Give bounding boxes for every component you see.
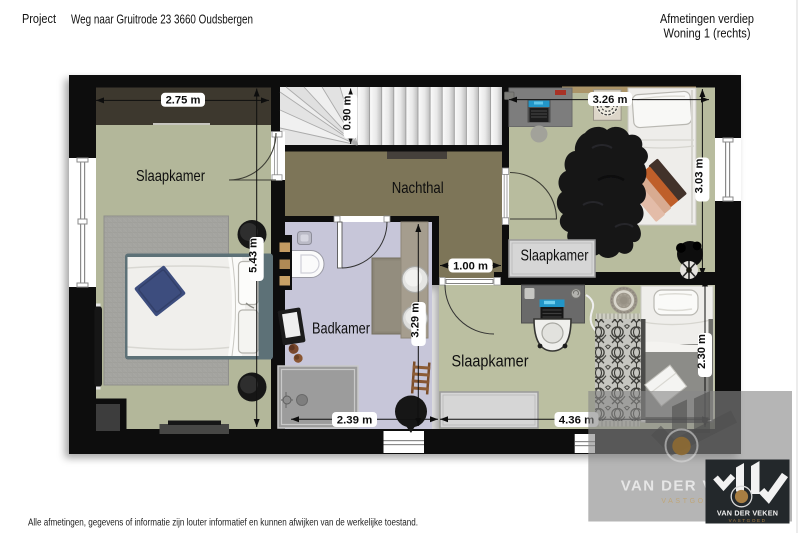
svg-text:Slaapkamer: Slaapkamer: [136, 168, 206, 185]
svg-text:Badkamer: Badkamer: [312, 321, 371, 338]
svg-text:Slaapkamer: Slaapkamer: [452, 352, 529, 371]
svg-text:3.03 m: 3.03 m: [693, 158, 705, 193]
svg-text:2.30 m: 2.30 m: [696, 334, 708, 369]
svg-text:VASTGOED: VASTGOED: [729, 518, 767, 523]
svg-text:2.75 m: 2.75 m: [166, 95, 201, 107]
svg-text:Project: Project: [22, 11, 56, 26]
svg-text:5.43 m: 5.43 m: [248, 238, 260, 273]
svg-text:Weg naar Gruitrode 23 3660 Ou: Weg naar Gruitrode 23 3660 Oudsbergen: [71, 12, 253, 27]
svg-text:1.00 m: 1.00 m: [453, 260, 488, 272]
svg-text:Afmetingen verdiep: Afmetingen verdiep: [660, 11, 754, 26]
svg-text:0.90 m: 0.90 m: [342, 95, 354, 130]
svg-text:2.39 m: 2.39 m: [337, 414, 372, 426]
svg-text:Nachthal: Nachthal: [392, 180, 444, 197]
svg-text:Alle afmetingen, gegevens of i: Alle afmetingen, gegevens of informatie …: [28, 518, 418, 529]
svg-text:3.26 m: 3.26 m: [593, 94, 628, 106]
svg-text:3.29 m: 3.29 m: [410, 303, 422, 338]
svg-text:VAN DER VEKEN: VAN DER VEKEN: [717, 509, 778, 518]
svg-text:Woning 1 (rechts): Woning 1 (rechts): [664, 26, 751, 41]
svg-text:Slaapkamer: Slaapkamer: [521, 248, 590, 265]
